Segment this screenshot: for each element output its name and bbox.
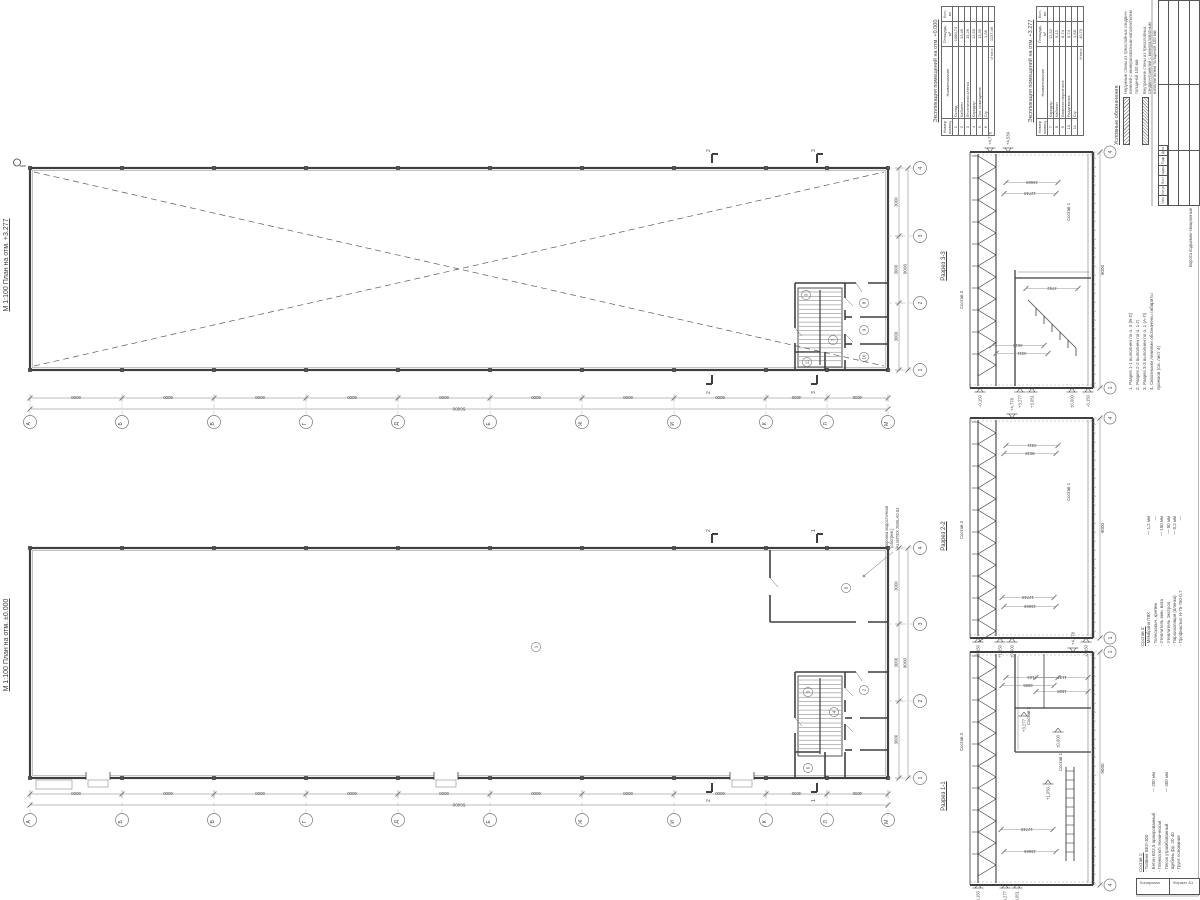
section-cut-label: 3 — [811, 391, 817, 394]
legend-item-inner-wall: Внутренние стены из трехслойных сэндвич-… — [1142, 10, 1158, 145]
axis-bubble — [24, 814, 37, 827]
truss-web — [978, 222, 996, 233]
axis-letter: Д — [394, 421, 400, 425]
axis-bubble — [821, 416, 834, 429]
section-cut-label: 2 — [706, 529, 712, 532]
bay-dim: 6000 — [71, 395, 81, 400]
composition-line: - Грунт основания — [1176, 772, 1182, 872]
truss-web — [978, 299, 996, 310]
gate-gap — [730, 774, 754, 783]
column-mark — [397, 167, 400, 170]
truss-web — [978, 711, 996, 722]
axis-letter: Л — [823, 820, 829, 823]
inner-dim: 15669 — [1024, 849, 1036, 854]
axis-letter: Б — [118, 819, 124, 823]
room-tag-number: 7 — [831, 338, 836, 341]
inner-dim: 1137 — [1057, 675, 1067, 680]
axis-letter: М — [884, 820, 890, 824]
bay-dim: 4000 — [791, 395, 801, 400]
truss-web — [978, 466, 996, 477]
roof-drain-note: Воронка водосточная (обогрев.) ALMITEX 2… — [884, 486, 898, 548]
bay-dim: 6000 — [531, 791, 541, 796]
column-mark — [489, 547, 492, 550]
note-line: 4. Сквозными линиями обозначены габариты… — [1149, 282, 1163, 390]
legend: Условные обозначения Наружные стены из т… — [1114, 10, 1158, 145]
composition-label: Состав 1 — [1058, 752, 1063, 771]
bay-dim: 6000 — [439, 791, 449, 796]
bay-dim: 6000 — [71, 791, 81, 796]
axis-bubble — [484, 416, 497, 429]
dock-apron — [36, 780, 72, 789]
axis-number: 4 — [918, 166, 924, 169]
plan-3277-label: М 1:100 План на отм. +3.277 — [3, 200, 15, 330]
truss-web — [978, 510, 996, 521]
truss-web — [978, 788, 996, 799]
col-num: Номер помещ. — [1037, 119, 1048, 136]
truss-web — [978, 777, 996, 788]
elev-flag — [1055, 728, 1058, 732]
inner-dim: 4311 — [1017, 351, 1027, 356]
axis-number: 1 — [1108, 636, 1114, 639]
section-1-1-label: Разрез 1-1 — [941, 766, 952, 826]
roof-composition-notes: Состав 3: - Мембрана ПВХ — 1,2 мм- Телес… — [1140, 516, 1198, 646]
column-mark — [305, 777, 308, 780]
gate-gap — [86, 774, 110, 783]
axis-bubble — [392, 416, 405, 429]
section-Разрез 2-2: 900041+4,778-0,150+1,050±0,000-0,1504311… — [959, 397, 1116, 658]
stamp-rev-header: Изм — [1159, 195, 1168, 205]
door-leaf — [845, 334, 853, 342]
layer-value: — 300 мм — [1164, 772, 1170, 792]
elev-flag — [1048, 780, 1051, 784]
room-tag-number: 5 — [844, 586, 849, 589]
stamp-rev-header: №док — [1159, 165, 1168, 175]
column-mark — [826, 369, 829, 372]
column-mark — [397, 547, 400, 550]
plan-3277: 3789101122336000600060006000600060006000… — [14, 149, 927, 429]
section-cut-label: 3 — [811, 149, 817, 152]
inner-dim: 4311 — [1027, 443, 1037, 448]
col-num: Номер помещ. — [942, 119, 953, 136]
axis-bubble — [300, 814, 313, 827]
truss-web — [978, 266, 996, 277]
axis-letter: В — [210, 421, 216, 425]
truss-web — [978, 689, 996, 700]
col-area: Площадь, м² — [1037, 22, 1048, 47]
room-tag-number: 1 — [534, 645, 539, 648]
explication-total-row: Итого: 1137,06 — [989, 7, 995, 136]
inner-dim: 15669 — [1024, 604, 1036, 609]
column-mark — [213, 369, 216, 372]
column-mark — [29, 369, 32, 372]
bay-dim: 6000 — [163, 791, 173, 796]
bay-dim: 6000 — [163, 395, 173, 400]
door-leaf — [795, 718, 802, 726]
room-tag-number: 11 — [805, 359, 810, 364]
drawing-sheet: { "colors": {"ink": "#3f3f3f", "dim": "#… — [0, 0, 1200, 900]
truss-web — [978, 598, 996, 609]
inner-dim: 12748 — [1024, 191, 1036, 196]
axis-bubble — [760, 814, 773, 827]
truss-web — [978, 310, 996, 321]
sheet-footer: Копировал Формат А1 — [1136, 878, 1200, 895]
stamp-line — [1159, 150, 1199, 151]
revision-headers: ИзмКол.учЛист№докПодпДата — [1159, 145, 1168, 205]
truss-web — [978, 744, 996, 755]
truss-web — [978, 766, 996, 777]
axis-bubble — [392, 814, 405, 827]
layer-value: — 200 мм — [1151, 772, 1157, 792]
axis-letter: Ж — [578, 421, 584, 426]
stamp-line — [1159, 84, 1199, 85]
inner-dim: 4762 — [1047, 286, 1057, 291]
legend-item-outer-wall: Наружные стены из трехслойных сэндвич-па… — [1123, 10, 1139, 145]
plan-0000-label: М 1:100 План на отм. ±0.000 — [3, 580, 15, 710]
axis-letter: К — [762, 422, 768, 425]
elev-flag — [1058, 728, 1061, 732]
composition-label: Состав 2 — [1026, 706, 1031, 725]
truss-web — [978, 631, 996, 642]
door-leaf — [856, 283, 862, 292]
axis-letter: И — [670, 422, 676, 426]
column-mark — [489, 369, 492, 372]
truss-web — [978, 200, 996, 211]
truss-web — [978, 233, 996, 244]
truss-web — [978, 733, 996, 744]
section-cut-label: 1 — [811, 799, 817, 802]
layer-name: - Профнастил Н-75-750-0,7 — [1178, 590, 1184, 646]
gates-note: Ворота подъемно-секционные — [1188, 204, 1198, 267]
leader-dot — [863, 575, 865, 577]
elevation-value: +4,778 — [1010, 397, 1015, 411]
column-mark — [121, 547, 124, 550]
column-mark — [765, 369, 768, 372]
truss-web — [978, 700, 996, 711]
roof-drain-note-line1: Воронка водосточная (обогрев.) — [884, 486, 895, 548]
truss-web — [978, 609, 996, 620]
truss-web — [978, 854, 996, 865]
axis-bubble — [760, 416, 773, 429]
explication-grid-0000: Номер помещ. Наименование Площадь, м² Ко… — [941, 6, 995, 136]
bay-dim: 3000 — [894, 197, 899, 207]
truss-web — [978, 499, 996, 510]
column-mark — [673, 167, 676, 170]
revision-stamp: ИзмКол.учЛист№докПодпДата — [1158, 0, 1200, 206]
axis-number: 2 — [918, 699, 924, 702]
composition-label: Состав 3 — [959, 520, 964, 539]
column-mark — [581, 547, 584, 550]
column-mark — [826, 777, 829, 780]
elev-flag — [1045, 780, 1048, 784]
total-dim: 56000 — [452, 803, 465, 808]
column-mark — [305, 547, 308, 550]
truss-web — [978, 167, 996, 178]
axis-bubble — [484, 814, 497, 827]
section-2-2-label: Разрез 2-2 — [941, 506, 952, 566]
column-mark — [121, 777, 124, 780]
column-mark — [489, 167, 492, 170]
column-mark — [397, 777, 400, 780]
truss-web — [978, 832, 996, 843]
room-tag-number: 6 — [806, 766, 811, 769]
axis-bubble — [116, 814, 129, 827]
explication-table-3277: Экспликация помещений на отм. +3.277 Ном… — [1028, 6, 1112, 136]
total-value: 1137,06 — [989, 22, 995, 47]
room-tag-number: 3 — [806, 690, 811, 693]
elevation-value: +3,051 — [1015, 890, 1020, 900]
axis-bubble — [208, 416, 221, 429]
section-side-dim: 9000 — [1100, 264, 1105, 275]
total-dim: 56000 — [452, 407, 465, 412]
axis-bubble — [24, 416, 37, 429]
layer-value: — — [1178, 516, 1184, 520]
column-mark — [397, 369, 400, 372]
truss-web — [978, 678, 996, 689]
axis-letter: И — [670, 820, 676, 824]
total-dim: 9000 — [903, 263, 908, 274]
column-mark — [581, 369, 584, 372]
axis-letter: Б — [118, 421, 124, 425]
truss-web — [978, 477, 996, 488]
door-leaf — [856, 672, 862, 681]
total-label: Итого: — [1078, 47, 1084, 136]
column-mark — [489, 777, 492, 780]
outer-wall-hatch-icon — [1123, 97, 1130, 145]
stair-stringer — [1028, 300, 1076, 348]
column-mark — [213, 777, 216, 780]
truss-web — [978, 332, 996, 343]
axis-letter: В — [210, 819, 216, 823]
truss-web — [978, 521, 996, 532]
bay-dim: 4000 — [791, 791, 801, 796]
section-cut-label: 2 — [706, 391, 712, 394]
truss-web — [978, 444, 996, 455]
elevation-value: ±0,000 — [1070, 394, 1075, 407]
door-leaf — [845, 298, 853, 306]
col-name: Наименование — [1037, 47, 1048, 119]
truss-web — [978, 810, 996, 821]
axis-number: 1 — [918, 776, 924, 779]
bay-dim: 6000 — [439, 395, 449, 400]
bay-dim: 6000 — [347, 395, 357, 400]
legend-item-label: Наружные стены из трехслойных сэндвич-па… — [1123, 10, 1139, 94]
column-mark — [673, 777, 676, 780]
truss-web — [978, 587, 996, 598]
truss-web — [978, 422, 996, 433]
elevation-value: ±0,000 — [1056, 734, 1061, 747]
truss-web — [978, 620, 996, 631]
column-mark — [29, 547, 32, 550]
axis-number: 3 — [918, 234, 924, 237]
truss-web — [978, 189, 996, 200]
column-mark — [765, 167, 768, 170]
total-value: 40,70 — [1078, 22, 1084, 47]
column-mark — [826, 167, 829, 170]
truss-web — [978, 532, 996, 543]
truss-web — [978, 799, 996, 810]
axis-letter: А — [26, 421, 32, 425]
bay-dim: 4000 — [852, 395, 862, 400]
col-count: Кол-во — [1037, 7, 1048, 22]
truss-web — [978, 365, 996, 376]
bay-dim: 6000 — [255, 791, 265, 796]
composition-line: - Профнастил Н-75-750-0,7 — — [1178, 516, 1184, 646]
bay-dim: 6000 — [623, 791, 633, 796]
hook-mark — [14, 159, 26, 166]
axis-number: 4 — [1108, 883, 1114, 886]
section-side-dim: 9000 — [1100, 522, 1105, 533]
truss-web — [978, 843, 996, 854]
axis-number: 4 — [1108, 416, 1114, 419]
column-mark — [581, 777, 584, 780]
axis-letter: Е — [486, 819, 492, 823]
axis-number: 1 — [918, 368, 924, 371]
bay-dim: 3000 — [894, 734, 899, 744]
axis-bubble — [208, 814, 221, 827]
inner-dim: 15669 — [1026, 180, 1038, 185]
explication-grid-3277: Номер помещ. Наименование Площадь, м² Ко… — [1036, 6, 1084, 136]
gate-gap — [434, 774, 458, 783]
inner-dim: 9018 — [1025, 451, 1035, 456]
bay-dim: 3000 — [894, 657, 899, 667]
inner-dim: 4610 — [1013, 343, 1023, 348]
axis-number: 4 — [1108, 150, 1114, 153]
axis-number: 3 — [918, 622, 924, 625]
elev-flag — [1021, 712, 1024, 716]
inner-dim: 7164 — [1027, 675, 1037, 680]
column-mark — [305, 167, 308, 170]
axis-bubble — [821, 814, 834, 827]
composition-label: Состав 3 — [959, 732, 964, 751]
explication-title-3277: Экспликация помещений на отм. +3.277 — [1028, 6, 1034, 136]
axis-letter: М — [884, 422, 890, 426]
footer-right-cell: Формат А1 — [1170, 879, 1199, 894]
truss-web — [978, 755, 996, 766]
bay-dim: 6000 — [715, 395, 725, 400]
truss-web — [978, 565, 996, 576]
truss-web — [978, 576, 996, 587]
bay-dim: 6000 — [255, 395, 265, 400]
axis-number: 1 — [1108, 386, 1114, 389]
note-line: 2. Разрез 2-2 выполнен по о. 1-Л — [1135, 282, 1142, 390]
stamp-line — [1189, 1, 1190, 205]
bay-dim: 3000 — [894, 264, 899, 274]
column-mark — [29, 777, 32, 780]
column-mark — [213, 167, 216, 170]
total-dim: 9000 — [903, 657, 908, 668]
roof-drain-note-line2: ALMITEX 2506.А0.04 — [895, 486, 900, 548]
column-mark — [121, 167, 124, 170]
truss-web — [978, 667, 996, 678]
truss-web — [978, 211, 996, 222]
truss-web — [978, 722, 996, 733]
stamp-line — [1178, 1, 1179, 205]
room-tag-number: 9 — [862, 328, 867, 331]
column-mark — [305, 369, 308, 372]
room-tag-number: 8 — [862, 301, 867, 304]
truss-web — [978, 865, 996, 876]
truss-web — [978, 178, 996, 189]
composition-label: Состав 3 — [959, 290, 964, 309]
axis-letter: Ж — [578, 819, 584, 824]
column-mark — [765, 547, 768, 550]
door-leaf — [845, 724, 853, 732]
composition-label: Состав 1 — [1066, 482, 1071, 501]
col-count: Кол-во — [942, 7, 953, 22]
outer-wall — [30, 548, 888, 778]
axis-letter: А — [26, 819, 32, 823]
plan-section-linework: 3789101122336000600060006000600060006000… — [0, 0, 1200, 900]
column-mark — [826, 547, 829, 550]
elevation-value: -0,150 — [978, 394, 983, 407]
truss-web — [978, 255, 996, 266]
door-leaf — [770, 578, 778, 587]
bay-dim: 6000 — [347, 791, 357, 796]
room-tag-number: 4 — [832, 710, 837, 713]
inner-dim: 6595 — [1023, 683, 1033, 688]
stamp-rev-header: Лист — [1159, 175, 1168, 185]
bay-dim: 4000 — [852, 791, 862, 796]
axis-letter: Г — [302, 820, 308, 823]
truss-web — [978, 321, 996, 332]
outer-wall-inner — [33, 551, 886, 776]
col-area: Площадь, м² — [942, 22, 953, 47]
inner-dim: 12748 — [1021, 827, 1033, 832]
section-Разрез 3-3: 900041+4,778+4,539-0,150+3,277+3,051±0,0… — [959, 131, 1116, 408]
truss-web — [978, 244, 996, 255]
section-cut-label: 2 — [706, 799, 712, 802]
bay-dim: 6000 — [623, 395, 633, 400]
room-tag-number: 10 — [862, 354, 867, 359]
truss-web — [978, 288, 996, 299]
elevation-value: +1,050 — [1046, 786, 1051, 800]
explication-total-row: Итого: 40,70 — [1078, 7, 1084, 136]
elevation-value: +3,277 — [1018, 394, 1023, 408]
bay-dim: 3000 — [894, 581, 899, 591]
note-line: 3. Разрез 3-3 выполнен по о. 1 (А-Л) — [1142, 282, 1149, 390]
truss-web — [978, 821, 996, 832]
section-cut-label: 1 — [811, 529, 817, 532]
legend-title: Условные обозначения — [1114, 10, 1120, 145]
axis-bubble — [116, 416, 129, 429]
elevation-value: +3,277 — [1003, 890, 1008, 900]
inner-wall-hatch-icon — [1142, 97, 1149, 145]
axis-letter: Д — [394, 819, 400, 823]
stamp-line — [1168, 1, 1169, 205]
footer-left-cell: Копировал — [1137, 879, 1170, 894]
truss-web — [978, 277, 996, 288]
stamp-rev-header: Кол.уч — [1159, 185, 1168, 195]
inner-dim: 12748 — [1022, 595, 1034, 600]
legend-item-label: Внутренние стены из трехслойных сэндвич-… — [1142, 10, 1158, 94]
bay-dim: 3000 — [894, 331, 899, 341]
explication-table-0000: Экспликация помещений на отм. +0.000 Ном… — [933, 6, 1019, 136]
section-notes: 1. Разрез 1-1 выполнен по о. 4 (В-Л)2. Р… — [1128, 282, 1200, 390]
column-mark — [673, 369, 676, 372]
axis-number: 4 — [918, 546, 924, 549]
column-mark — [213, 547, 216, 550]
truss-web — [978, 554, 996, 565]
bay-dim: 6000 — [531, 395, 541, 400]
layer-name: - Грунт основания — [1176, 835, 1182, 872]
column-mark — [673, 547, 676, 550]
axis-letter: Л — [823, 422, 829, 425]
axis-letter: Г — [302, 422, 308, 425]
section-3-3-label: Разрез 3-3 — [941, 236, 952, 296]
note-line: 1. Разрез 1-1 выполнен по о. 4 (В-Л) — [1128, 282, 1135, 390]
total-label: Итого: — [989, 47, 995, 136]
explication-title-0000: Экспликация помещений на отм. +0.000 — [933, 6, 939, 136]
